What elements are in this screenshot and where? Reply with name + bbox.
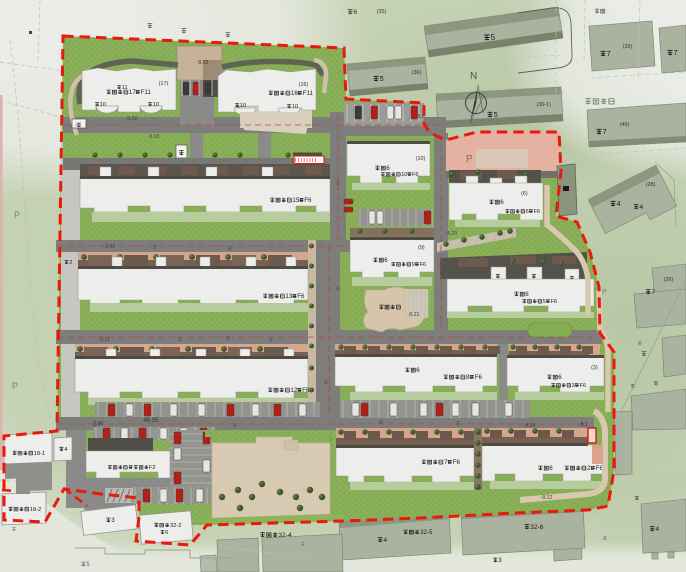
svg-text:6: 6 <box>500 199 504 206</box>
svg-text:F6: F6 <box>551 299 558 305</box>
svg-text:F2: F2 <box>149 465 156 471</box>
svg-text:· 8.20: · 8.20 <box>444 231 457 237</box>
svg-text:(28): (28) <box>646 182 656 188</box>
svg-text:13: 13 <box>285 293 292 300</box>
svg-text:(39): (39) <box>623 44 633 50</box>
svg-text:F11: F11 <box>303 90 314 97</box>
svg-text:6: 6 <box>353 9 357 16</box>
svg-text:· 8.22: · 8.22 <box>195 60 209 66</box>
svg-text:(9): (9) <box>418 245 425 251</box>
svg-text:(3): (3) <box>591 365 598 371</box>
svg-text:6: 6 <box>558 374 562 381</box>
svg-text:5: 5 <box>380 74 384 83</box>
svg-text:P: P <box>14 210 20 220</box>
svg-text:10: 10 <box>153 102 159 108</box>
svg-text:10: 10 <box>240 103 246 109</box>
svg-text:5: 5 <box>494 110 498 119</box>
svg-text:(17): (17) <box>159 81 169 87</box>
svg-text:(35): (35) <box>377 9 387 15</box>
svg-text:10: 10 <box>100 102 106 108</box>
svg-text:15: 15 <box>292 197 299 204</box>
svg-text:(26): (26) <box>664 277 674 283</box>
svg-text:7: 7 <box>444 459 448 466</box>
svg-text:11: 11 <box>122 85 128 91</box>
svg-text:· 8.21: · 8.21 <box>97 337 110 343</box>
svg-text:F6: F6 <box>297 293 305 300</box>
svg-text:· 8.12: · 8.12 <box>539 495 552 501</box>
svg-text:P: P <box>466 154 473 165</box>
svg-text:· 8.18: · 8.18 <box>146 134 159 140</box>
svg-text:· 8.02: · 8.02 <box>124 116 138 122</box>
svg-text:6: 6 <box>526 209 529 215</box>
svg-text:3: 3 <box>572 383 575 389</box>
svg-text:17: 17 <box>129 89 136 96</box>
svg-text:7: 7 <box>603 127 607 136</box>
svg-text:4: 4 <box>383 537 387 544</box>
svg-text:(40): (40) <box>620 122 630 128</box>
svg-text:18-2: 18-2 <box>30 507 42 513</box>
svg-text:· 8.14: · 8.14 <box>522 423 535 429</box>
svg-text:9: 9 <box>412 262 415 268</box>
svg-text:3: 3 <box>111 517 115 524</box>
svg-text:P: P <box>602 289 607 296</box>
svg-text:F6: F6 <box>580 383 587 389</box>
svg-text:10: 10 <box>292 104 298 110</box>
svg-text:32-4: 32-4 <box>278 532 292 539</box>
svg-text:· 7.96: · 7.96 <box>90 421 103 427</box>
svg-text:32-6: 32-6 <box>530 524 544 531</box>
svg-text:· 8.0: · 8.0 <box>414 114 424 120</box>
svg-text:7: 7 <box>674 48 678 57</box>
svg-text:7: 7 <box>651 289 655 296</box>
svg-text:4: 4 <box>655 526 659 533</box>
svg-text:4: 4 <box>639 204 643 211</box>
svg-text:48.05: 48.05 <box>143 418 159 424</box>
svg-text:18-1: 18-1 <box>34 451 46 457</box>
svg-text:32-5: 32-5 <box>420 529 433 536</box>
svg-text:(6): (6) <box>521 191 528 197</box>
svg-text:2: 2 <box>587 465 591 472</box>
svg-text:F6: F6 <box>453 459 461 466</box>
svg-text:F6: F6 <box>412 172 419 178</box>
svg-text:(16): (16) <box>299 82 309 88</box>
svg-text:· 8.1: · 8.1 <box>577 422 587 428</box>
svg-text:6: 6 <box>165 530 168 536</box>
svg-text:2: 2 <box>69 260 72 266</box>
svg-text:N: N <box>470 71 477 82</box>
svg-text:F6: F6 <box>304 197 312 204</box>
svg-text:4: 4 <box>617 199 621 208</box>
svg-text:5: 5 <box>86 561 90 568</box>
svg-text:F6: F6 <box>534 209 541 215</box>
svg-text:F6: F6 <box>475 374 483 381</box>
svg-text:· 8.46: · 8.46 <box>102 244 115 250</box>
svg-text:F6: F6 <box>302 387 310 394</box>
svg-text:6: 6 <box>386 165 390 172</box>
svg-text:· 8.21: · 8.21 <box>406 312 420 318</box>
svg-text:6: 6 <box>525 291 529 298</box>
svg-text:32-2: 32-2 <box>170 523 182 529</box>
svg-text:(30-1): (30-1) <box>537 102 552 108</box>
svg-text:5: 5 <box>491 33 496 42</box>
svg-text:6: 6 <box>416 367 420 374</box>
svg-text:(36): (36) <box>412 70 422 76</box>
svg-text:3: 3 <box>498 557 502 564</box>
svg-text:P: P <box>12 381 18 391</box>
svg-text:7: 7 <box>607 49 611 58</box>
svg-text:F11: F11 <box>141 89 152 96</box>
svg-text:8: 8 <box>466 374 470 381</box>
svg-text:5: 5 <box>543 299 546 305</box>
svg-text:16: 16 <box>291 90 298 97</box>
svg-text:F6: F6 <box>420 262 427 268</box>
svg-text:10: 10 <box>401 172 407 178</box>
svg-text:6: 6 <box>384 257 388 264</box>
svg-text:12: 12 <box>290 387 297 394</box>
svg-text:(10): (10) <box>416 156 426 162</box>
svg-text:6: 6 <box>549 465 553 472</box>
